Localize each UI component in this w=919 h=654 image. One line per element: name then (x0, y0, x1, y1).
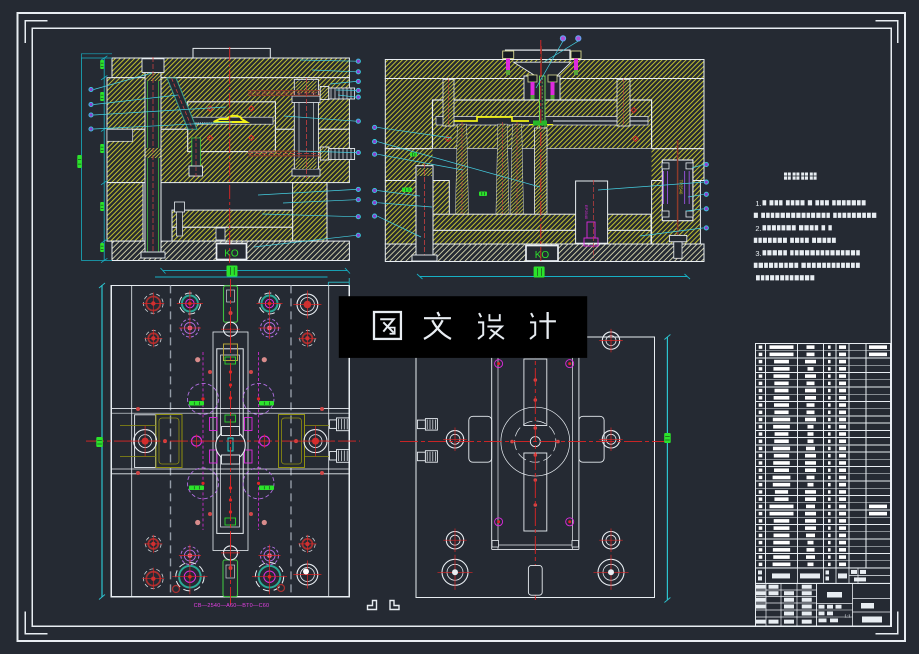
svg-text:TP2540: TP2540 (679, 180, 684, 195)
svg-text:3.: 3. (755, 249, 761, 258)
svg-text:KO: KO (224, 249, 239, 260)
svg-text:1.: 1. (755, 199, 761, 208)
svg-text:EP2540: EP2540 (584, 205, 589, 220)
svg-text:1:1: 1:1 (844, 614, 851, 619)
svg-text:CB—2540—A60—BT0—C60: CB—2540—A60—BT0—C60 (194, 603, 270, 609)
svg-text:KO: KO (535, 250, 550, 261)
svg-text:2.: 2. (755, 224, 761, 233)
